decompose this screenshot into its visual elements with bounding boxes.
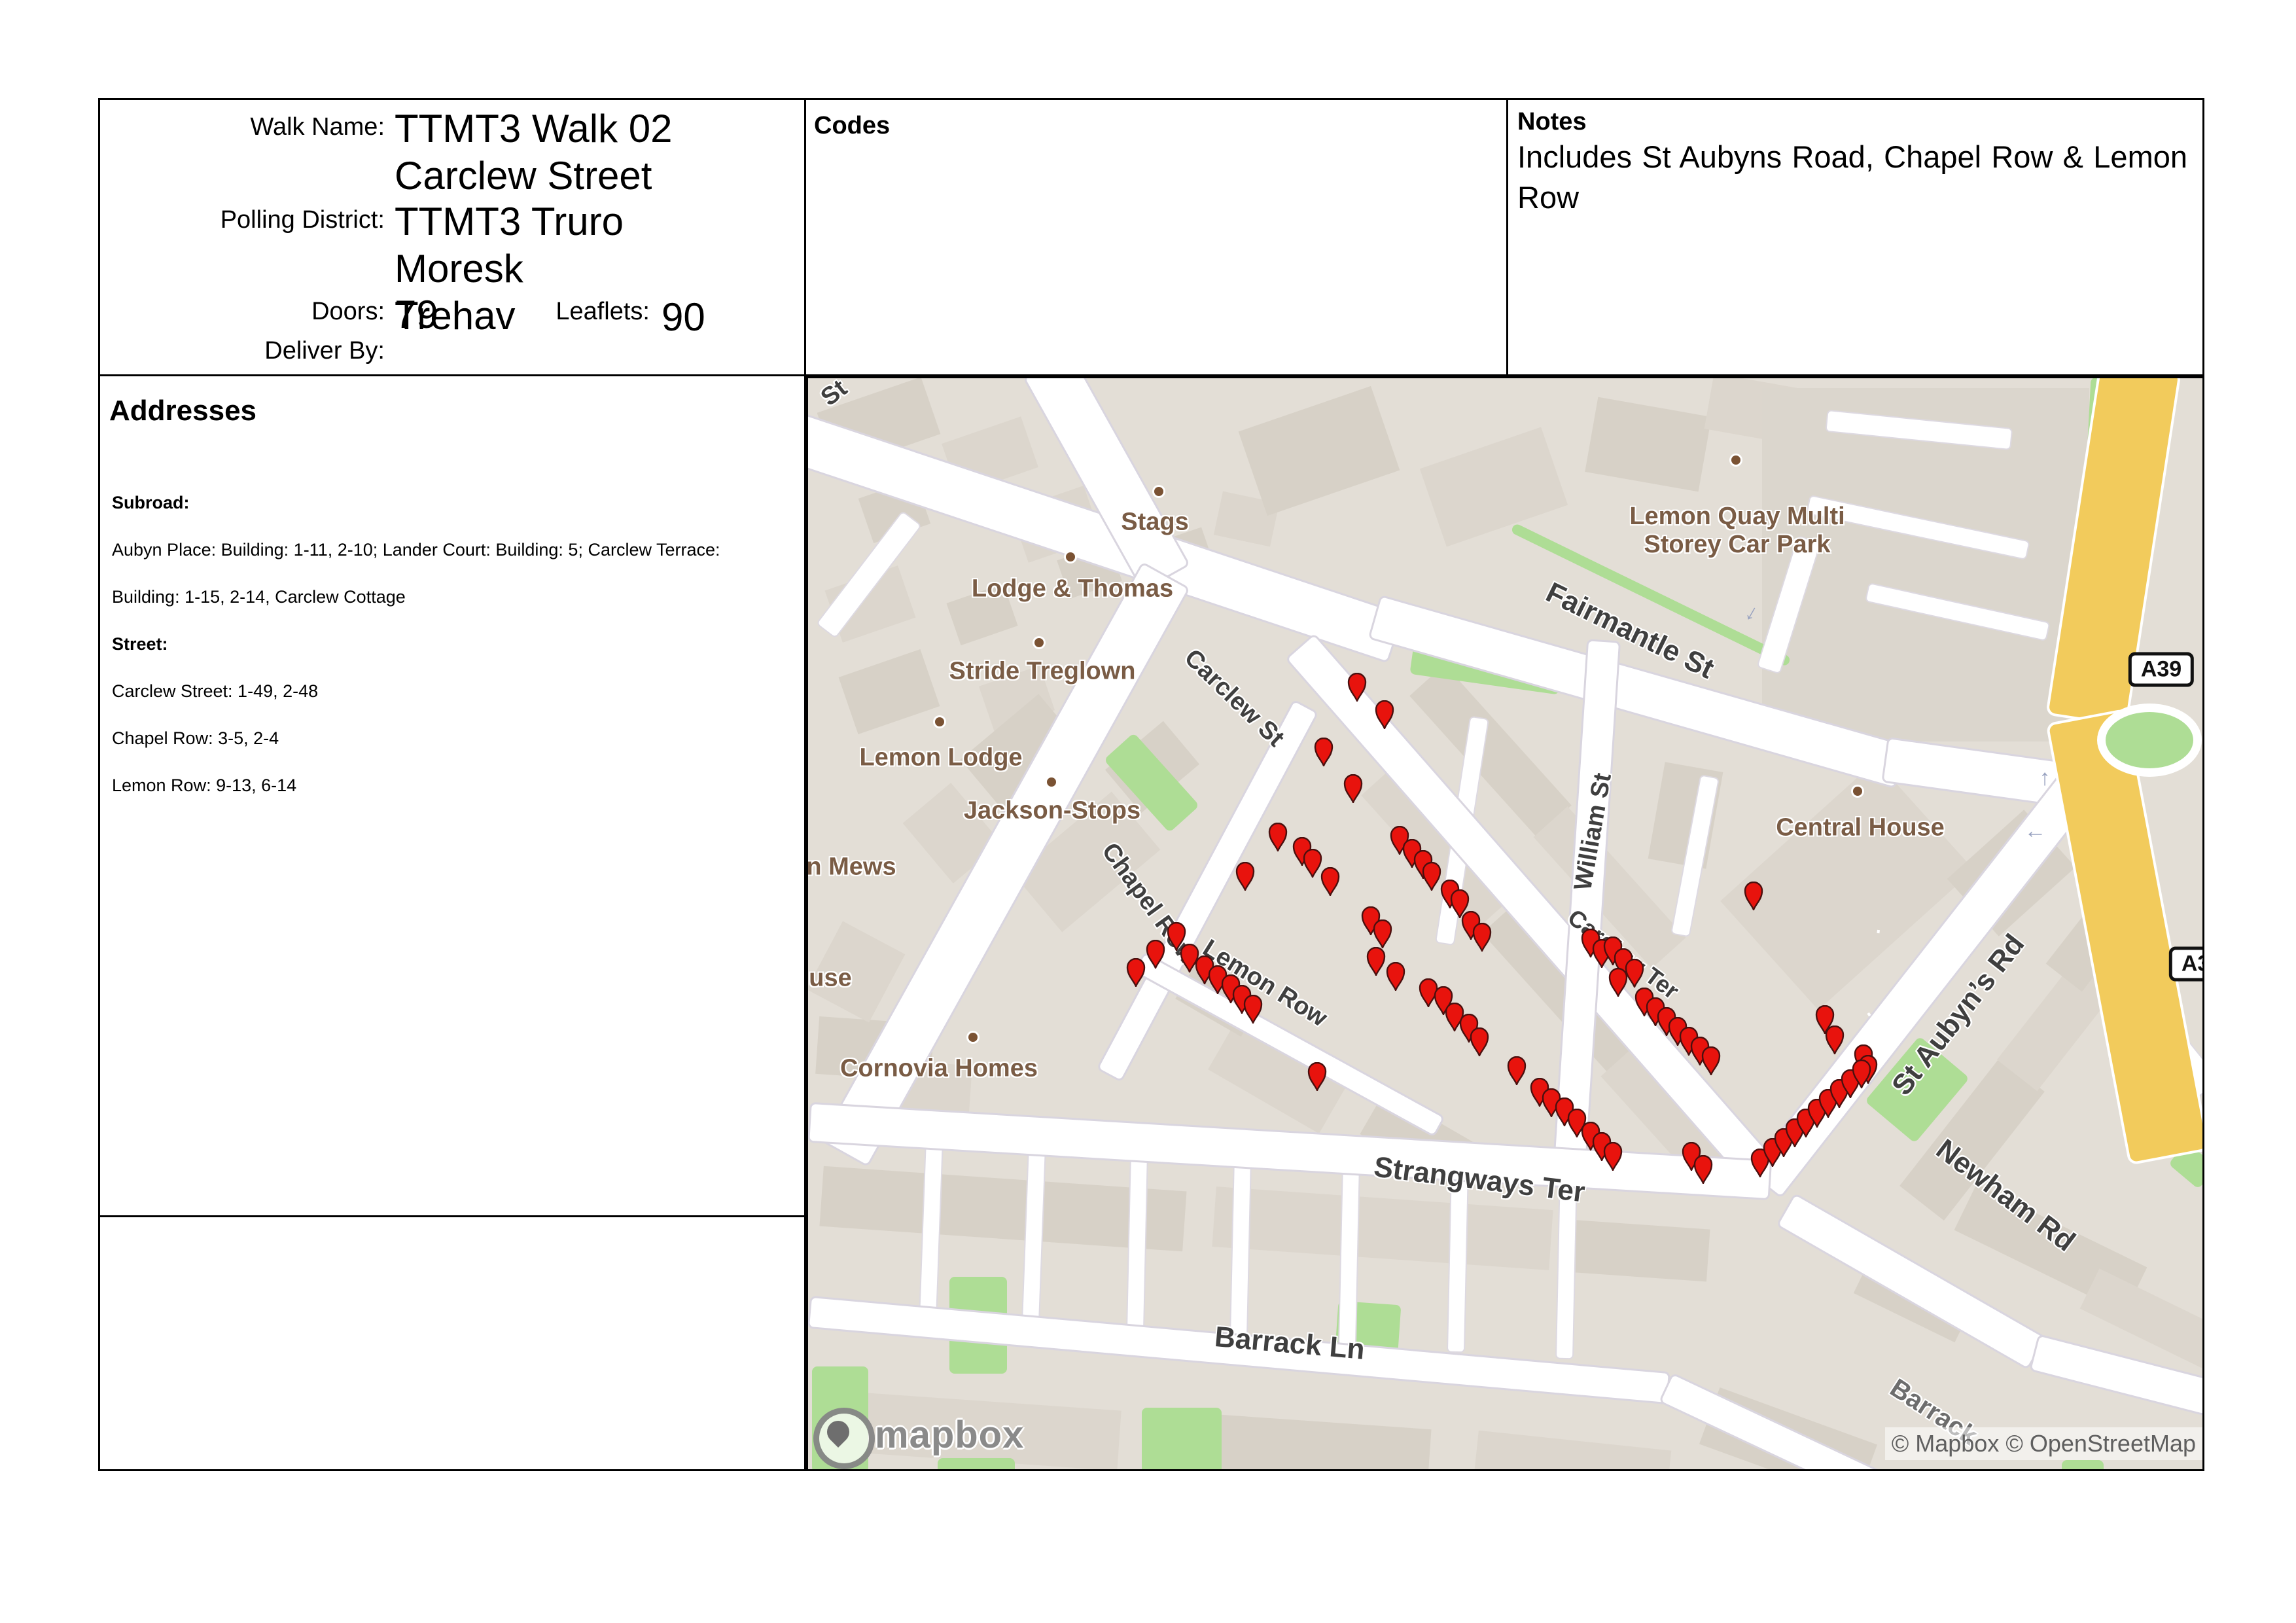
map-marker[interactable] (1824, 1026, 1845, 1054)
map-building (1565, 1220, 1710, 1282)
map-minor-road (1023, 1146, 1045, 1323)
map-building (1239, 386, 1400, 516)
map-building (839, 649, 940, 734)
map-building (1474, 1431, 1672, 1471)
map-canvas[interactable]: Fairmantle StCarclew StChapel RowLemon R… (806, 376, 2204, 1471)
oneway-arrow-icon: ↑ (1740, 601, 1762, 628)
walk-name-value: TTMT3 Walk 02 Carclew Street (395, 105, 761, 200)
oneway-arrow-icon: ↑ (2022, 829, 2047, 840)
notes-text: Includes St Aubyns Road, Chapel Row & Le… (1517, 137, 2187, 218)
map-marker[interactable] (1313, 738, 1334, 766)
map-building (1420, 427, 1568, 547)
map-marker[interactable] (1506, 1056, 1527, 1085)
poi-dot-icon (1731, 455, 1740, 465)
poi-label: Central House (1776, 814, 1945, 842)
poi-dot-icon (1066, 552, 1075, 562)
leaflets-value: 90 (662, 294, 779, 341)
map-marker[interactable] (1602, 1142, 1623, 1171)
map-marker[interactable] (1851, 1060, 1872, 1088)
walk-info-cell: Walk Name: TTMT3 Walk 02 Carclew Street … (98, 98, 806, 376)
map-marker[interactable] (1235, 862, 1256, 891)
leaflets-label: Leaflets: (499, 298, 650, 326)
map-marker[interactable] (1374, 700, 1395, 729)
street-label: Carclew St (1178, 644, 1290, 753)
map-marker[interactable] (1243, 995, 1263, 1024)
oneway-arrow-icon: ↑ (2040, 766, 2051, 791)
map-green-area (938, 1458, 1015, 1471)
map-marker[interactable] (1624, 959, 1645, 988)
map-minor-road (1448, 1168, 1468, 1352)
poi-label: Stride Treglown (949, 658, 1135, 686)
poi-dot-icon (1034, 638, 1044, 647)
map-marker[interactable] (1267, 823, 1288, 851)
addresses-line: Chapel Row: 3-5, 2-4 (112, 728, 279, 749)
map-building (1585, 397, 1711, 492)
addresses-subroad-header: Subroad: (112, 493, 190, 513)
map-marker[interactable] (1693, 1155, 1714, 1184)
poi-dot-icon (968, 1033, 978, 1042)
walk-sheet-page: Walk Name: TTMT3 Walk 02 Carclew Street … (0, 0, 2296, 1623)
map-green-area (1142, 1408, 1222, 1471)
notes-title: Notes (1517, 108, 1587, 136)
map-minor-road (1231, 1158, 1250, 1338)
map-marker[interactable] (1743, 882, 1764, 910)
addresses-line: Carclew Street: 1-49, 2-48 (112, 681, 318, 702)
addresses-title: Addresses (109, 395, 256, 427)
map-green-area (2062, 1460, 2104, 1471)
poi-label: Cornovia Homes (840, 1055, 1038, 1083)
notes-cell: Notes Includes St Aubyns Road, Chapel Ro… (1506, 98, 2204, 376)
deliver-by-label: Deliver By: (100, 337, 385, 365)
map-roundabout-icon (2097, 704, 2202, 777)
map-marker[interactable] (1347, 673, 1368, 702)
map-marker[interactable] (1307, 1062, 1328, 1091)
map-marker[interactable] (1125, 958, 1146, 987)
walk-name-label: Walk Name: (100, 113, 385, 141)
addresses-line: Building: 1-15, 2-14, Carclew Cottage (112, 587, 406, 607)
polling-district-label: Polling District: (100, 206, 385, 234)
map-marker[interactable] (1320, 867, 1341, 896)
map-marker[interactable] (1472, 923, 1492, 952)
doors-value: 79 (395, 291, 512, 338)
map-minor-road (1127, 1152, 1147, 1331)
empty-cell (98, 1215, 806, 1471)
route-badge: A39 (2169, 947, 2204, 982)
addresses-cell: Addresses Subroad: Aubyn Place: Building… (98, 374, 806, 1217)
poi-dot-icon (935, 717, 944, 726)
poi-dot-icon (1853, 787, 1862, 796)
poi-label: Stags (1121, 508, 1188, 537)
codes-title: Codes (814, 112, 890, 140)
poi-label: Lodge & Thomas (972, 575, 1173, 603)
poi-dot-icon (1047, 777, 1056, 787)
map-minor-road (920, 1139, 942, 1319)
route-badge: A39 (2128, 652, 2194, 687)
poi-label: Jackson-Stops (964, 797, 1140, 825)
map-marker[interactable] (1701, 1046, 1722, 1075)
poi-dot-icon (1154, 487, 1163, 496)
addresses-line: Lemon Row: 9-13, 6-14 (112, 776, 296, 796)
map-attribution[interactable]: © Mapbox © OpenStreetMap (1885, 1427, 2202, 1460)
map-marker[interactable] (1469, 1027, 1490, 1056)
poi-label: Lemon Lodge (859, 744, 1022, 772)
poi-label: Lemon Quay Multi Storey Car Park (1593, 503, 1881, 559)
poi-label: n Mews (806, 853, 896, 882)
codes-cell: Codes (804, 98, 1508, 376)
poi-label: use (809, 965, 851, 993)
addresses-line: Aubyn Place: Building: 1-11, 2-10; Lande… (112, 540, 720, 560)
doors-label: Doors: (100, 298, 385, 326)
mapbox-logo-wordmark[interactable]: mapbox (875, 1413, 1024, 1457)
map-marker[interactable] (1145, 940, 1166, 969)
map-marker[interactable] (1366, 947, 1386, 976)
map-marker[interactable] (1343, 774, 1364, 803)
map-marker[interactable] (1372, 919, 1393, 948)
map-marker[interactable] (1385, 962, 1406, 991)
addresses-street-header: Street: (112, 634, 168, 654)
